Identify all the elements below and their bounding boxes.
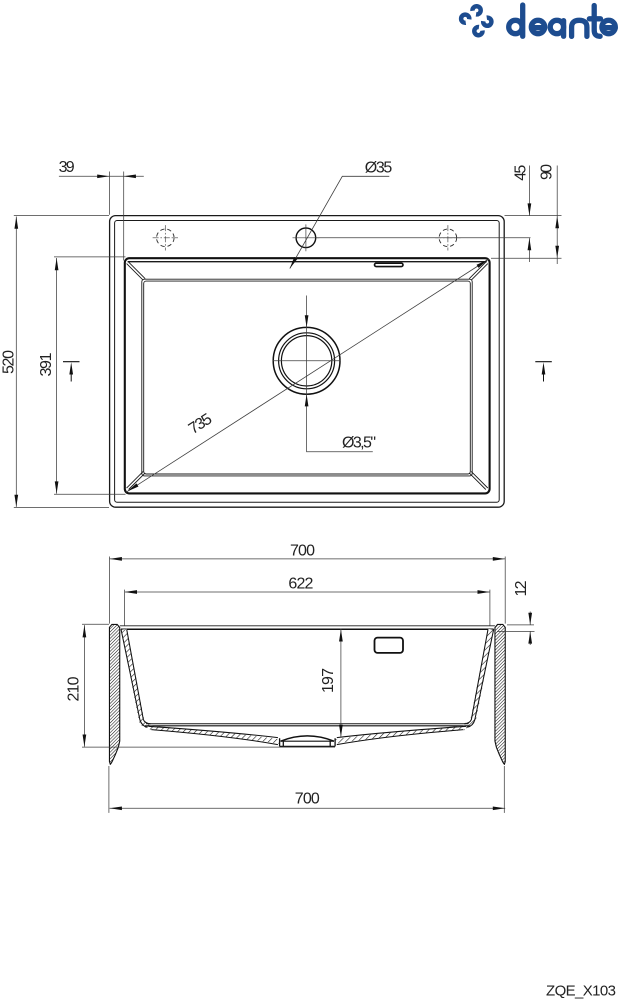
svg-text:622: 622 <box>288 576 313 593</box>
svg-text:520: 520 <box>1 350 18 374</box>
svg-text:12: 12 <box>513 580 530 596</box>
svg-text:700: 700 <box>290 542 315 559</box>
svg-text:391: 391 <box>38 352 55 376</box>
svg-text:Ø3,5": Ø3,5" <box>342 435 376 452</box>
svg-text:39: 39 <box>59 159 75 176</box>
svg-text:197: 197 <box>320 668 337 693</box>
svg-text:ZQE_X103: ZQE_X103 <box>546 983 616 1000</box>
svg-text:210: 210 <box>66 676 83 701</box>
svg-text:Ø35: Ø35 <box>365 160 393 177</box>
svg-text:45: 45 <box>513 165 530 181</box>
svg-text:700: 700 <box>295 791 320 808</box>
svg-text:90: 90 <box>539 164 556 180</box>
